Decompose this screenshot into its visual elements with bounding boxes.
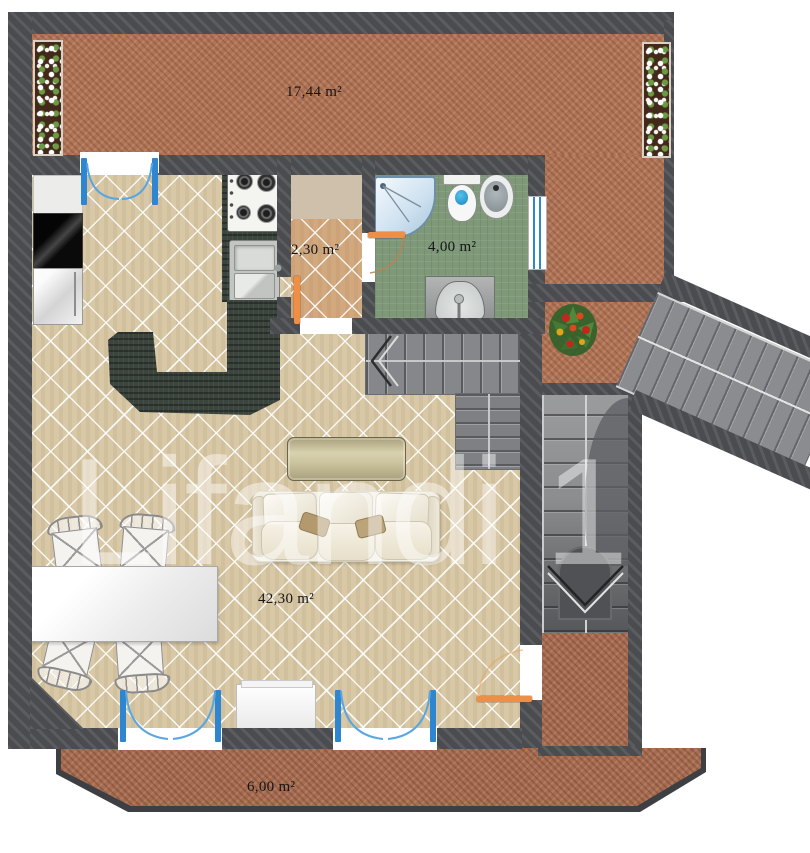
bidet-drain [493,185,499,191]
wall-bottom-left [30,728,118,749]
terrace-side-strip [542,155,668,285]
wall-bath-right-upper [528,156,545,198]
interior-stairs-upper-run [365,330,524,395]
wall-top [8,12,674,34]
terrace-area-label: 17,44 m² [286,84,342,101]
wall-bottom-middle [222,728,333,749]
kitchen-sink [229,240,280,302]
wall-terrace-interior-main [157,155,545,175]
stove-burner [257,204,276,223]
stove-burner [257,173,276,192]
interior-stairs-corner-run [455,393,524,470]
bathroom-door-niche [362,233,375,282]
wall-shaft-right [628,385,642,755]
wall-living-right-upper [520,334,542,645]
wall-shaft-bottom [538,746,642,756]
wall-kitchen-hall-upper [277,156,291,277]
bathroom-door-leaf [368,232,405,238]
exit-door-opening [520,645,542,700]
radiator-top-panel [241,680,313,688]
wall-living-right-lower [520,700,542,748]
sink-basin [234,245,275,271]
wall-terrace-interior-left [30,155,82,175]
bathroom-area-label: 4,00 m² [428,239,476,256]
floor-plan: 17,44 m² 2,30 m² 4,00 m² 42,30 m² 6,00 m… [0,0,810,853]
stove-burner [236,205,251,220]
dining-table [30,566,218,642]
flower-planter-left [33,40,63,156]
hallway-area-label: 2,30 m² [291,242,339,259]
wall-bottom-right [437,728,522,749]
balcony-floor [61,748,701,806]
bidet [479,174,514,219]
wall-left [8,12,32,749]
kitchen-counter-white [33,175,83,215]
sink-drainer [234,273,275,299]
potted-plant [546,300,600,360]
hallway-floor [291,219,362,320]
wall-bath-bottom-main [352,318,545,334]
toilet-bowl [447,184,477,222]
balcony-area-label: 6,00 m² [247,779,295,796]
stove-knobs [229,175,234,221]
stove-burner [236,173,253,190]
terrace-door-threshold [80,152,159,173]
refrigerator-handle [74,272,76,316]
toilet-water [455,190,468,205]
living-room-area-label: 42,30 m² [258,591,314,608]
terrace-french-door-leaf [81,158,87,205]
kitchen-black-appliance [33,213,83,270]
terrace-french-door-leaf [152,158,158,205]
dining-chair [115,512,176,575]
wall-hall-bath-upper [362,156,375,233]
balcony-french-door-leaf [430,690,436,742]
hall-opening-threshold [300,318,352,334]
flower-planter-right [642,42,671,158]
balcony-french-door-leaf [335,690,341,742]
balcony-french-door-leaf [120,690,126,742]
terrace-floor [32,33,668,155]
lower-exit-landing [542,633,628,746]
balcony-door-threshold-right [333,730,437,750]
exit-door-leaf [477,696,532,702]
bathroom-window [528,196,547,270]
hall-closet-niche [291,175,362,219]
balcony-french-door-leaf [215,690,221,742]
balcony-door-threshold-left [118,730,222,750]
stair-arch-marker [558,546,612,620]
sideboard [287,437,406,481]
hallway-door-leaf [294,276,300,324]
